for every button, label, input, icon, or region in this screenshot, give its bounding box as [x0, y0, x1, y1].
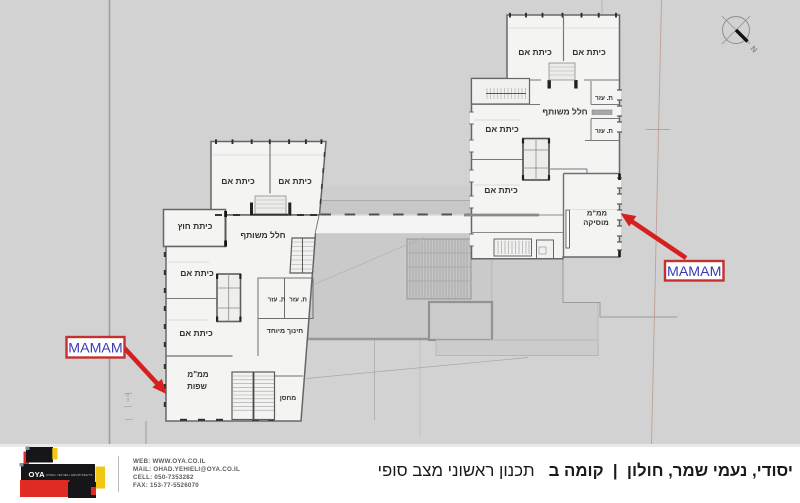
svg-text:כיתת חוץ: כיתת חוץ [178, 221, 213, 231]
svg-text:חינוך מיוחד: חינוך מיוחד [267, 328, 304, 335]
svg-text:WEB: WWW.OYA.CO.IL: WEB: WWW.OYA.CO.IL [133, 458, 206, 465]
svg-text:חלל משותף: חלל משותף [542, 107, 587, 117]
svg-text:ת. עזר: ת. עזר [595, 95, 613, 102]
svg-text:כיתת אם: כיתת אם [179, 328, 213, 338]
svg-text:OHAD YEHIELI ARCHITECTS: OHAD YEHIELI ARCHITECTS [46, 473, 93, 477]
svg-text:ת. עזר: ת. עזר [595, 128, 613, 135]
svg-text:FAX: 153-77-5526070: FAX: 153-77-5526070 [133, 482, 199, 489]
svg-text:כיתת אם: כיתת אם [484, 185, 518, 195]
svg-text:כיתת אם: כיתת אם [180, 268, 214, 278]
svg-text:כיתת אם: כיתת אם [518, 47, 552, 57]
svg-text:כיתת אם: כיתת אם [485, 124, 519, 134]
svg-text:מחסן: מחסן [280, 395, 297, 402]
svg-text:12.40: 12.40 [126, 393, 130, 402]
svg-text:ת. עזר: ת. עזר [289, 297, 307, 304]
svg-text:MAIL: OHAD.YEHIELI@OYA.CO.IL: MAIL: OHAD.YEHIELI@OYA.CO.IL [133, 466, 240, 473]
svg-text:שפות: שפות [187, 382, 207, 391]
svg-text:ת. עזר: ת. עזר [268, 297, 286, 304]
svg-text:ממ"מ: ממ"מ [587, 209, 607, 218]
svg-text:ממ"מ: ממ"מ [187, 370, 208, 379]
svg-text:OYA: OYA [29, 470, 46, 479]
svg-text:MAMAM: MAMAM [68, 341, 122, 357]
svg-text:מוסיקה: מוסיקה [583, 218, 609, 227]
svg-text:כיתת אם: כיתת אם [572, 47, 606, 57]
svg-text:כיתת אם: כיתת אם [278, 176, 312, 186]
svg-text:כיתת אם: כיתת אם [221, 176, 255, 186]
svg-text:CELL: 050-7353282: CELL: 050-7353282 [133, 474, 194, 481]
svg-text:MAMAM: MAMAM [667, 264, 721, 280]
svg-text:חלל משותף: חלל משותף [240, 230, 285, 240]
